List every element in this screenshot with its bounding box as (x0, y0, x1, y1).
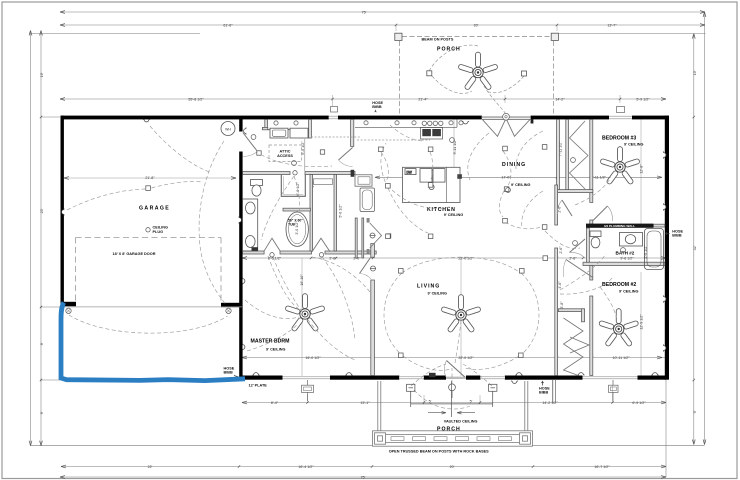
svg-text:21'-4": 21'-4" (418, 97, 428, 101)
svg-text:9': 9' (693, 410, 697, 413)
svg-text:12' PLATE: 12' PLATE (249, 383, 268, 387)
svg-text:2'-6": 2'-6" (559, 246, 563, 254)
svg-text:12'-9 1/2": 12'-9 1/2" (640, 314, 644, 330)
svg-text:22'-0 1/2": 22'-0 1/2" (458, 356, 474, 360)
svg-text:VAULTED CEILING: VAULTED CEILING (444, 419, 478, 423)
svg-text:3/4 PLUMBING WALL: 3/4 PLUMBING WALL (604, 224, 635, 228)
svg-text:PLUG: PLUG (153, 230, 164, 234)
svg-text:BEAM ON POSTS: BEAM ON POSTS (422, 37, 454, 41)
svg-text:6'-9 1/2": 6'-9 1/2" (632, 401, 646, 405)
svg-text:20': 20' (450, 465, 455, 469)
svg-text:BIBB: BIBB (372, 105, 382, 109)
svg-text:9': 9' (40, 411, 44, 414)
svg-text:TUB: TUB (288, 223, 296, 227)
svg-text:9'-6 1/2": 9'-6 1/2" (620, 256, 634, 260)
svg-text:BEDROOM #3: BEDROOM #3 (602, 135, 636, 141)
svg-text:2'-0 1/2": 2'-0 1/2" (644, 245, 648, 259)
svg-text:2'-6": 2'-6" (569, 256, 577, 260)
svg-text:19': 19' (40, 72, 44, 77)
svg-text:BIBB: BIBB (224, 371, 234, 375)
svg-text:3'-8": 3'-8" (560, 301, 564, 309)
svg-text:ATTIC: ATTIC (280, 149, 291, 153)
svg-text:KITCHEN: KITCHEN (427, 207, 456, 213)
svg-text:9' CEILING: 9' CEILING (619, 290, 639, 294)
svg-text:OPEN TRUSSED BEAM ON POSTS WIT: OPEN TRUSSED BEAM ON POSTS WITH ROCK BAS… (389, 449, 489, 453)
svg-text:16'-4 1/2": 16'-4 1/2" (298, 465, 314, 469)
svg-text:9'-11 1/2": 9'-11 1/2" (453, 139, 457, 155)
svg-text:DW: DW (407, 170, 412, 174)
svg-text:9' CEILING: 9' CEILING (266, 347, 286, 351)
svg-text:13'-1": 13'-1" (360, 401, 370, 405)
svg-text:2'-6": 2'-6" (558, 205, 562, 213)
svg-text:13'-7": 13'-7" (607, 23, 617, 27)
svg-text:5'-9 1/2": 5'-9 1/2" (636, 97, 650, 101)
svg-text:21'-8": 21'-8" (145, 176, 155, 180)
svg-text:LIVING: LIVING (417, 283, 440, 289)
svg-text:9' CEILING: 9' CEILING (624, 143, 644, 147)
svg-text:9' CEILING: 9' CEILING (511, 183, 531, 187)
svg-text:9' CEILING: 9' CEILING (444, 213, 464, 217)
svg-text:GARAGE: GARAGE (139, 205, 170, 211)
svg-text:22': 22' (148, 465, 153, 469)
svg-text:8'-5 1/2": 8'-5 1/2" (268, 256, 282, 260)
svg-text:10'-11 1/2": 10'-11 1/2" (613, 356, 631, 360)
svg-text:16'-0 1/2": 16'-0 1/2" (305, 356, 321, 360)
svg-text:61'-6": 61'-6" (223, 23, 233, 27)
svg-text:32': 32' (693, 245, 697, 250)
svg-text:9': 9' (40, 342, 44, 345)
svg-text:BIBB: BIBB (672, 234, 682, 238)
svg-text:17'-0": 17'-0" (501, 176, 511, 180)
svg-text:4'-6": 4'-6" (558, 281, 562, 289)
svg-text:ACCESS: ACCESS (277, 154, 293, 158)
svg-text:18' X 8' GARAGE DOOR: 18' X 8' GARAGE DOOR (113, 252, 156, 256)
svg-text:23': 23' (40, 208, 44, 213)
svg-text:8'-4": 8'-4" (271, 401, 279, 405)
svg-text:5': 5' (470, 399, 473, 403)
svg-text:14'-2 1/2": 14'-2 1/2" (542, 401, 558, 405)
svg-text:2'-6": 2'-6" (329, 256, 337, 260)
svg-text:20': 20' (474, 23, 479, 27)
svg-text:BIBB: BIBB (539, 391, 549, 395)
svg-text:PORCH: PORCH (437, 46, 461, 52)
svg-text:DINING: DINING (502, 162, 526, 168)
svg-text:75': 75' (362, 10, 367, 14)
svg-text:MASTER BDRM: MASTER BDRM (251, 338, 290, 344)
svg-text:16'-7 1/2": 16'-7 1/2" (594, 465, 610, 469)
svg-text:9' CEILING: 9' CEILING (428, 292, 448, 296)
svg-text:55'-8 1/2": 55'-8 1/2" (188, 97, 204, 101)
svg-text:19': 19' (693, 70, 697, 75)
svg-text:5'-6 1/2": 5'-6 1/2" (339, 204, 343, 218)
svg-text:WH: WH (225, 128, 231, 132)
svg-text:16'-10": 16'-10" (300, 274, 304, 286)
svg-text:12'-8": 12'-8" (640, 164, 644, 174)
svg-text:75': 75' (361, 475, 366, 479)
svg-text:3'-0 1/2": 3'-0 1/2" (295, 221, 299, 235)
svg-text:14'-2": 14'-2" (555, 97, 565, 101)
